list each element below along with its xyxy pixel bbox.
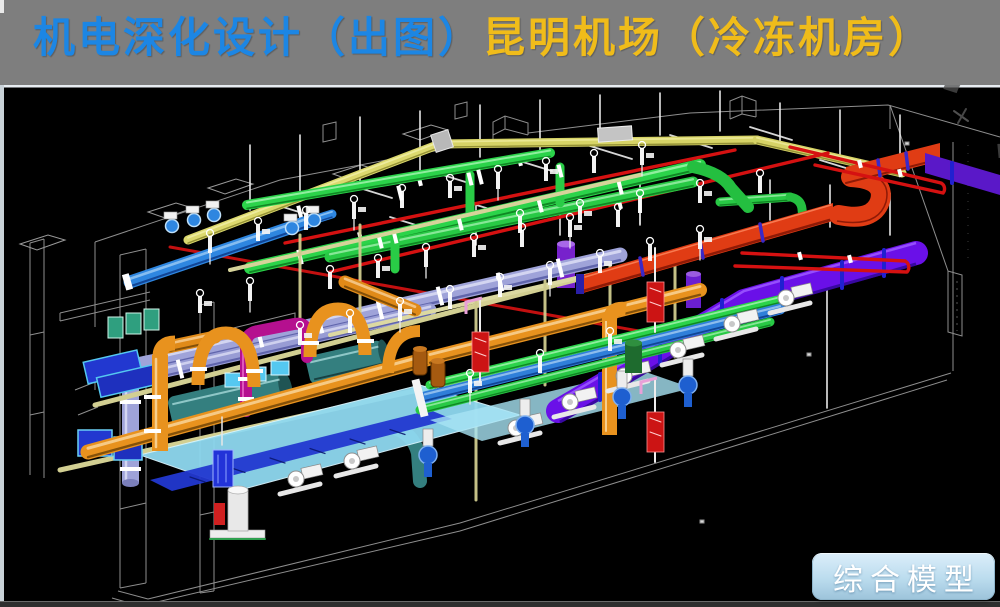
slide-title-primary: 机电深化设计（出图） (33, 16, 483, 62)
model-type-badge: 综合模型 (812, 553, 995, 600)
slide-corner-notch (0, 0, 4, 13)
viewport-top-border (0, 85, 1000, 88)
slide-footer-strip (0, 601, 1000, 607)
presentation-slide: 机电深化设计（出图）昆明机场（冷冻机房） (0, 0, 1000, 607)
slide-title-secondary: 昆明机场（冷冻机房） (483, 16, 933, 62)
cad-viewport (0, 85, 1000, 602)
slide-header: 机电深化设计（出图）昆明机场（冷冻机房） (0, 0, 1000, 85)
model-type-badge-label: 综合模型 (826, 555, 981, 599)
slide-title: 机电深化设计（出图）昆明机场（冷冻机房） (33, 4, 933, 65)
viewport-left-border (0, 85, 4, 602)
